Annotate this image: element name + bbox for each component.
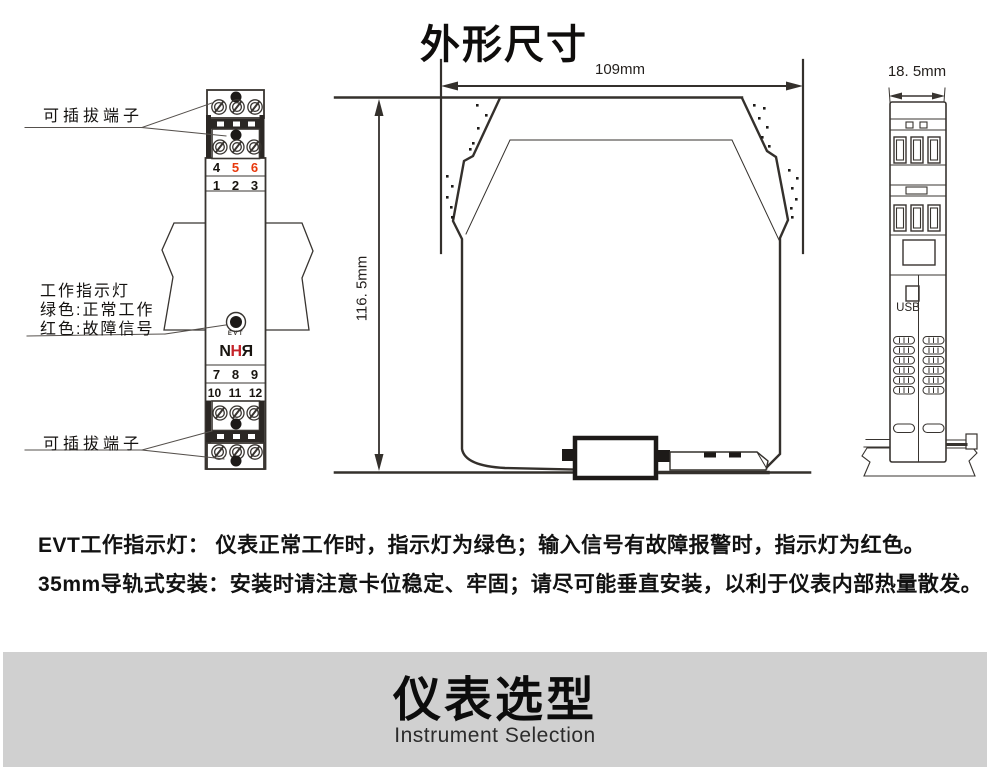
terminal-number: 1 xyxy=(213,178,220,193)
end-view-drawing xyxy=(862,88,977,476)
side-bar xyxy=(260,401,265,444)
usb-label: USB xyxy=(894,302,922,314)
housing-profile-left xyxy=(453,98,575,470)
terminal-number: 11 xyxy=(229,386,242,400)
indicator-callout-line3: 红色:故障信号 xyxy=(40,320,154,339)
bottom-terminal-callout: 可插拔端子 xyxy=(43,430,143,454)
terminal-number: 8 xyxy=(232,367,239,382)
screw-icon xyxy=(213,140,261,154)
top-terminal-callout: 可插拔端子 xyxy=(43,102,143,126)
brand-logo: NHR xyxy=(206,343,266,361)
terminal-numbers-row-456: 4 5 6 xyxy=(207,160,264,175)
terminal-number: 10 xyxy=(208,386,221,400)
indicator-callout-line2: 绿色:正常工作 xyxy=(40,301,154,320)
terminal-dot xyxy=(231,456,242,467)
din-latch xyxy=(660,452,768,473)
terminal-number: 12 xyxy=(249,386,262,400)
terminal-numbers-row-101112: 10 11 12 xyxy=(204,386,266,400)
width-dimension-arrow xyxy=(441,82,803,91)
section-banner-title: 仪表选型 xyxy=(3,660,987,730)
housing-inner-outline xyxy=(466,140,779,240)
din-rail-right-segment xyxy=(266,223,313,330)
rail-latch-handle xyxy=(966,434,977,449)
side-bar xyxy=(206,401,211,444)
side-bar xyxy=(206,115,211,158)
housing-profile-right xyxy=(742,98,788,469)
din-rail-left-segment xyxy=(162,223,205,330)
bottom-terminal-assembly xyxy=(206,401,265,469)
din-clip xyxy=(562,438,670,478)
logo-letter-h: H xyxy=(230,343,241,360)
note-mounting: 35mm导轨式安装：安装时请注意卡位稳定、牢固；请尽可能垂直安装，以利于仪表内部… xyxy=(38,568,968,598)
section-banner: 仪表选型 Instrument Selection xyxy=(3,652,987,767)
terminal-dot xyxy=(231,419,242,430)
led-evt-label: EVT xyxy=(206,331,266,337)
terminal-number: 3 xyxy=(251,178,258,193)
terminal-dot xyxy=(231,130,242,141)
top-terminal-assembly xyxy=(206,90,265,159)
height-dimension-label: 116. 5mm xyxy=(312,238,412,338)
terminal-numbers-row-123: 1 2 3 xyxy=(207,178,264,193)
vent-dots xyxy=(446,104,799,219)
terminal-number: 7 xyxy=(213,367,220,382)
width-dimension-label: 109mm xyxy=(570,61,670,78)
terminal-numbers-row-789: 7 8 9 xyxy=(207,367,264,382)
indicator-callout-line1: 工作指示灯 xyxy=(40,282,154,301)
logo-letter-r: R xyxy=(242,343,253,361)
section-banner-subtitle: Instrument Selection xyxy=(3,724,987,748)
page: { "title": "外形尺寸", "front_view": { "top_… xyxy=(0,0,990,778)
terminal-number: 9 xyxy=(251,367,258,382)
note-indicator: EVT工作指示灯： 仪表正常工作时，指示灯为绿色；输入信号有故障报警时，指示灯为… xyxy=(38,529,968,559)
terminal-number: 4 xyxy=(213,160,220,175)
logo-letter-n: N xyxy=(219,343,230,360)
terminal-number: 6 xyxy=(251,160,258,175)
screw-icon xyxy=(213,406,261,420)
indicator-callout: 工作指示灯 绿色:正常工作 红色:故障信号 xyxy=(40,282,154,339)
terminal-number: 2 xyxy=(232,178,239,193)
end-width-dimension-label: 18. 5mm xyxy=(884,63,950,80)
terminal-number: 5 xyxy=(232,160,239,175)
front-view-drawing xyxy=(25,90,313,469)
